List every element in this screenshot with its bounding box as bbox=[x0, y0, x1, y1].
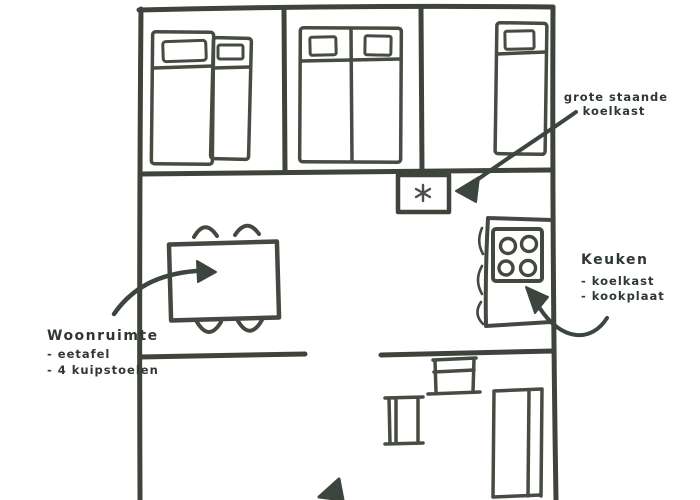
arrow-to-table-head bbox=[197, 261, 216, 282]
bed-double-pillow-left bbox=[310, 37, 336, 56]
small-bench bbox=[428, 358, 480, 394]
bed-single-right-pillow bbox=[218, 45, 243, 59]
chair-bottom-right bbox=[238, 320, 262, 331]
bed-single-top-right-headline bbox=[497, 52, 546, 54]
bed-double-centerline bbox=[351, 29, 352, 161]
bed-single-top-right-pillow bbox=[505, 31, 534, 50]
bed-single-right-headline bbox=[213, 67, 250, 68]
chair-bottom-left bbox=[197, 322, 221, 332]
tall-unit bbox=[493, 389, 542, 497]
arrow-to-cooktop-head bbox=[526, 287, 548, 313]
wall-middle-left bbox=[140, 354, 305, 357]
bed-single-left bbox=[151, 32, 213, 165]
bedroom3-bed bbox=[495, 23, 547, 155]
fridge-note-line2: koelkast bbox=[583, 104, 646, 118]
floorplan-sketch: grote staande koelkast Keuken - koelkast… bbox=[0, 0, 700, 500]
wall-top bbox=[139, 6, 553, 10]
arrow-to-fridge-head bbox=[456, 177, 479, 202]
fridge-unit bbox=[398, 175, 449, 212]
bed-single-top-right bbox=[495, 23, 547, 155]
living-label-item-kuipstoelen: - 4 kuipstoelen bbox=[47, 363, 159, 377]
kitchen-label-title: Keuken bbox=[581, 252, 648, 268]
bed-double-pillow-right bbox=[365, 36, 391, 55]
burner-bottom-right bbox=[521, 261, 536, 276]
wall-left bbox=[140, 9, 141, 500]
arrow-to-table bbox=[114, 271, 196, 314]
arrow-to-cooktop bbox=[539, 307, 607, 335]
counter-edge-sketch bbox=[477, 228, 483, 324]
wall-middle-right bbox=[381, 351, 553, 355]
arrow-to-fridge bbox=[470, 112, 576, 185]
wall-right bbox=[553, 7, 556, 500]
kitchen-label-item-koelkast: - koelkast bbox=[581, 274, 655, 288]
bed-double-headline bbox=[301, 59, 401, 61]
bed-single-left-headline bbox=[154, 66, 213, 68]
burner-top-right bbox=[522, 237, 537, 252]
snowflake-icon bbox=[416, 185, 430, 201]
kitchen-label-item-kookplaat: - kookplaat bbox=[581, 289, 665, 303]
burner-top-left bbox=[501, 239, 516, 254]
fridge-note-line1: grote staande bbox=[564, 90, 668, 104]
chair-top-right bbox=[235, 226, 259, 235]
bottom-room-furniture bbox=[385, 358, 542, 497]
living-label-title: Woonruimte bbox=[47, 328, 159, 344]
chair-top-left bbox=[194, 227, 217, 237]
bed-single-left-pillow bbox=[163, 40, 207, 61]
small-cabinet bbox=[385, 397, 423, 444]
wall-bedroom-divider-2 bbox=[421, 8, 422, 171]
wall-bedroom-divider-1 bbox=[284, 9, 285, 172]
burner-bottom-left bbox=[499, 261, 513, 275]
living-label-item-eetafel: - eetafel bbox=[47, 347, 110, 361]
bedroom2-bed bbox=[300, 28, 402, 163]
floorplan-canvas: grote staande koelkast Keuken - koelkast… bbox=[0, 0, 700, 500]
dining-set bbox=[169, 226, 279, 332]
arrow-bottom-partial-head bbox=[319, 479, 343, 500]
dining-table bbox=[169, 242, 279, 321]
bedroom1-beds bbox=[151, 32, 251, 165]
